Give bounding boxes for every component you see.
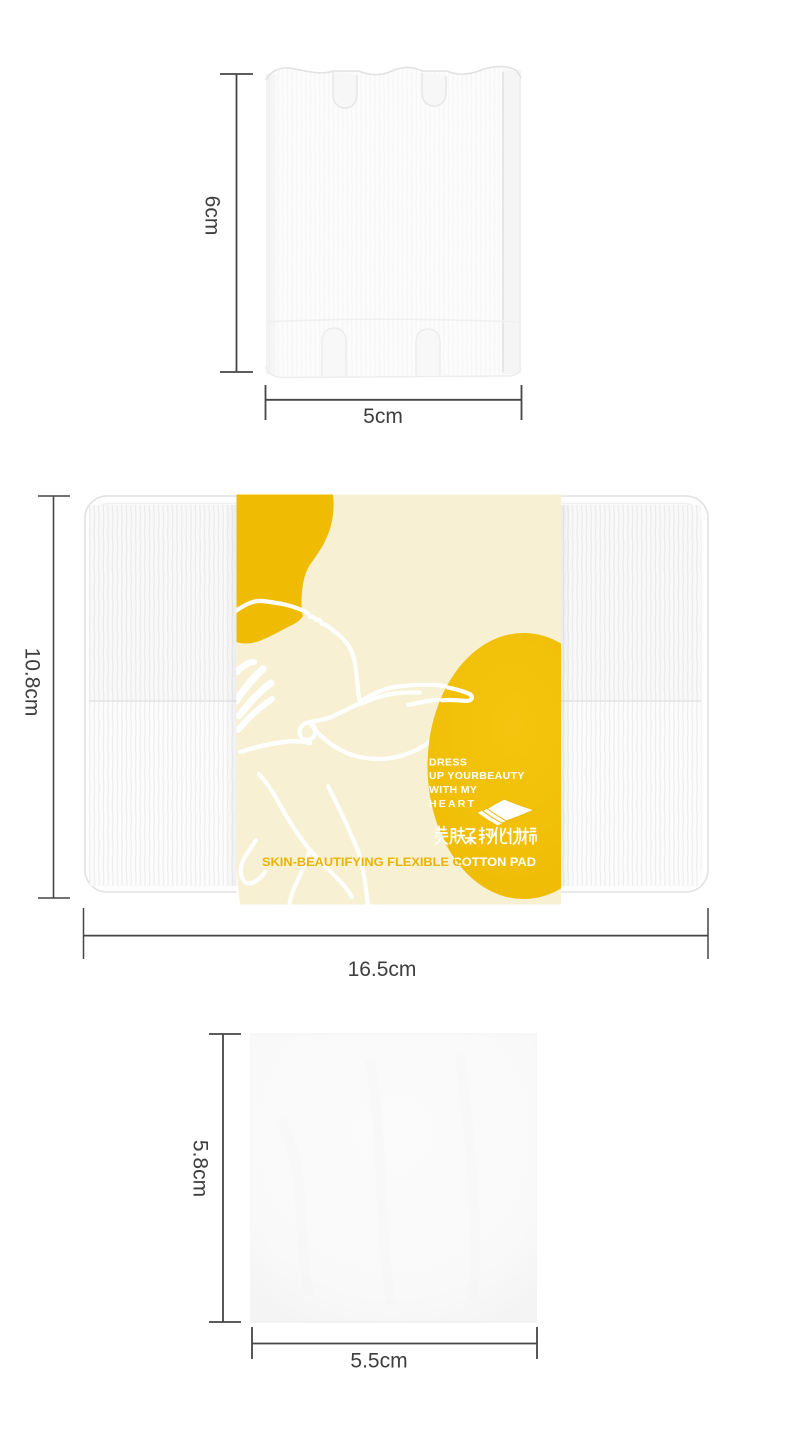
svg-text:UP YOURBEAUTY: UP YOURBEAUTY xyxy=(429,770,525,782)
svg-text:WITH MY: WITH MY xyxy=(429,784,477,796)
svg-text:16.5cm: 16.5cm xyxy=(348,958,417,981)
svg-text:DRESS: DRESS xyxy=(429,757,467,769)
svg-text:10.8cm: 10.8cm xyxy=(21,648,44,717)
svg-text:5cm: 5cm xyxy=(363,405,403,428)
svg-text:6cm: 6cm xyxy=(201,196,224,236)
svg-text:5.8cm: 5.8cm xyxy=(189,1140,212,1197)
svg-text:HEART: HEART xyxy=(429,798,476,810)
svg-text:5.5cm: 5.5cm xyxy=(350,1350,407,1373)
